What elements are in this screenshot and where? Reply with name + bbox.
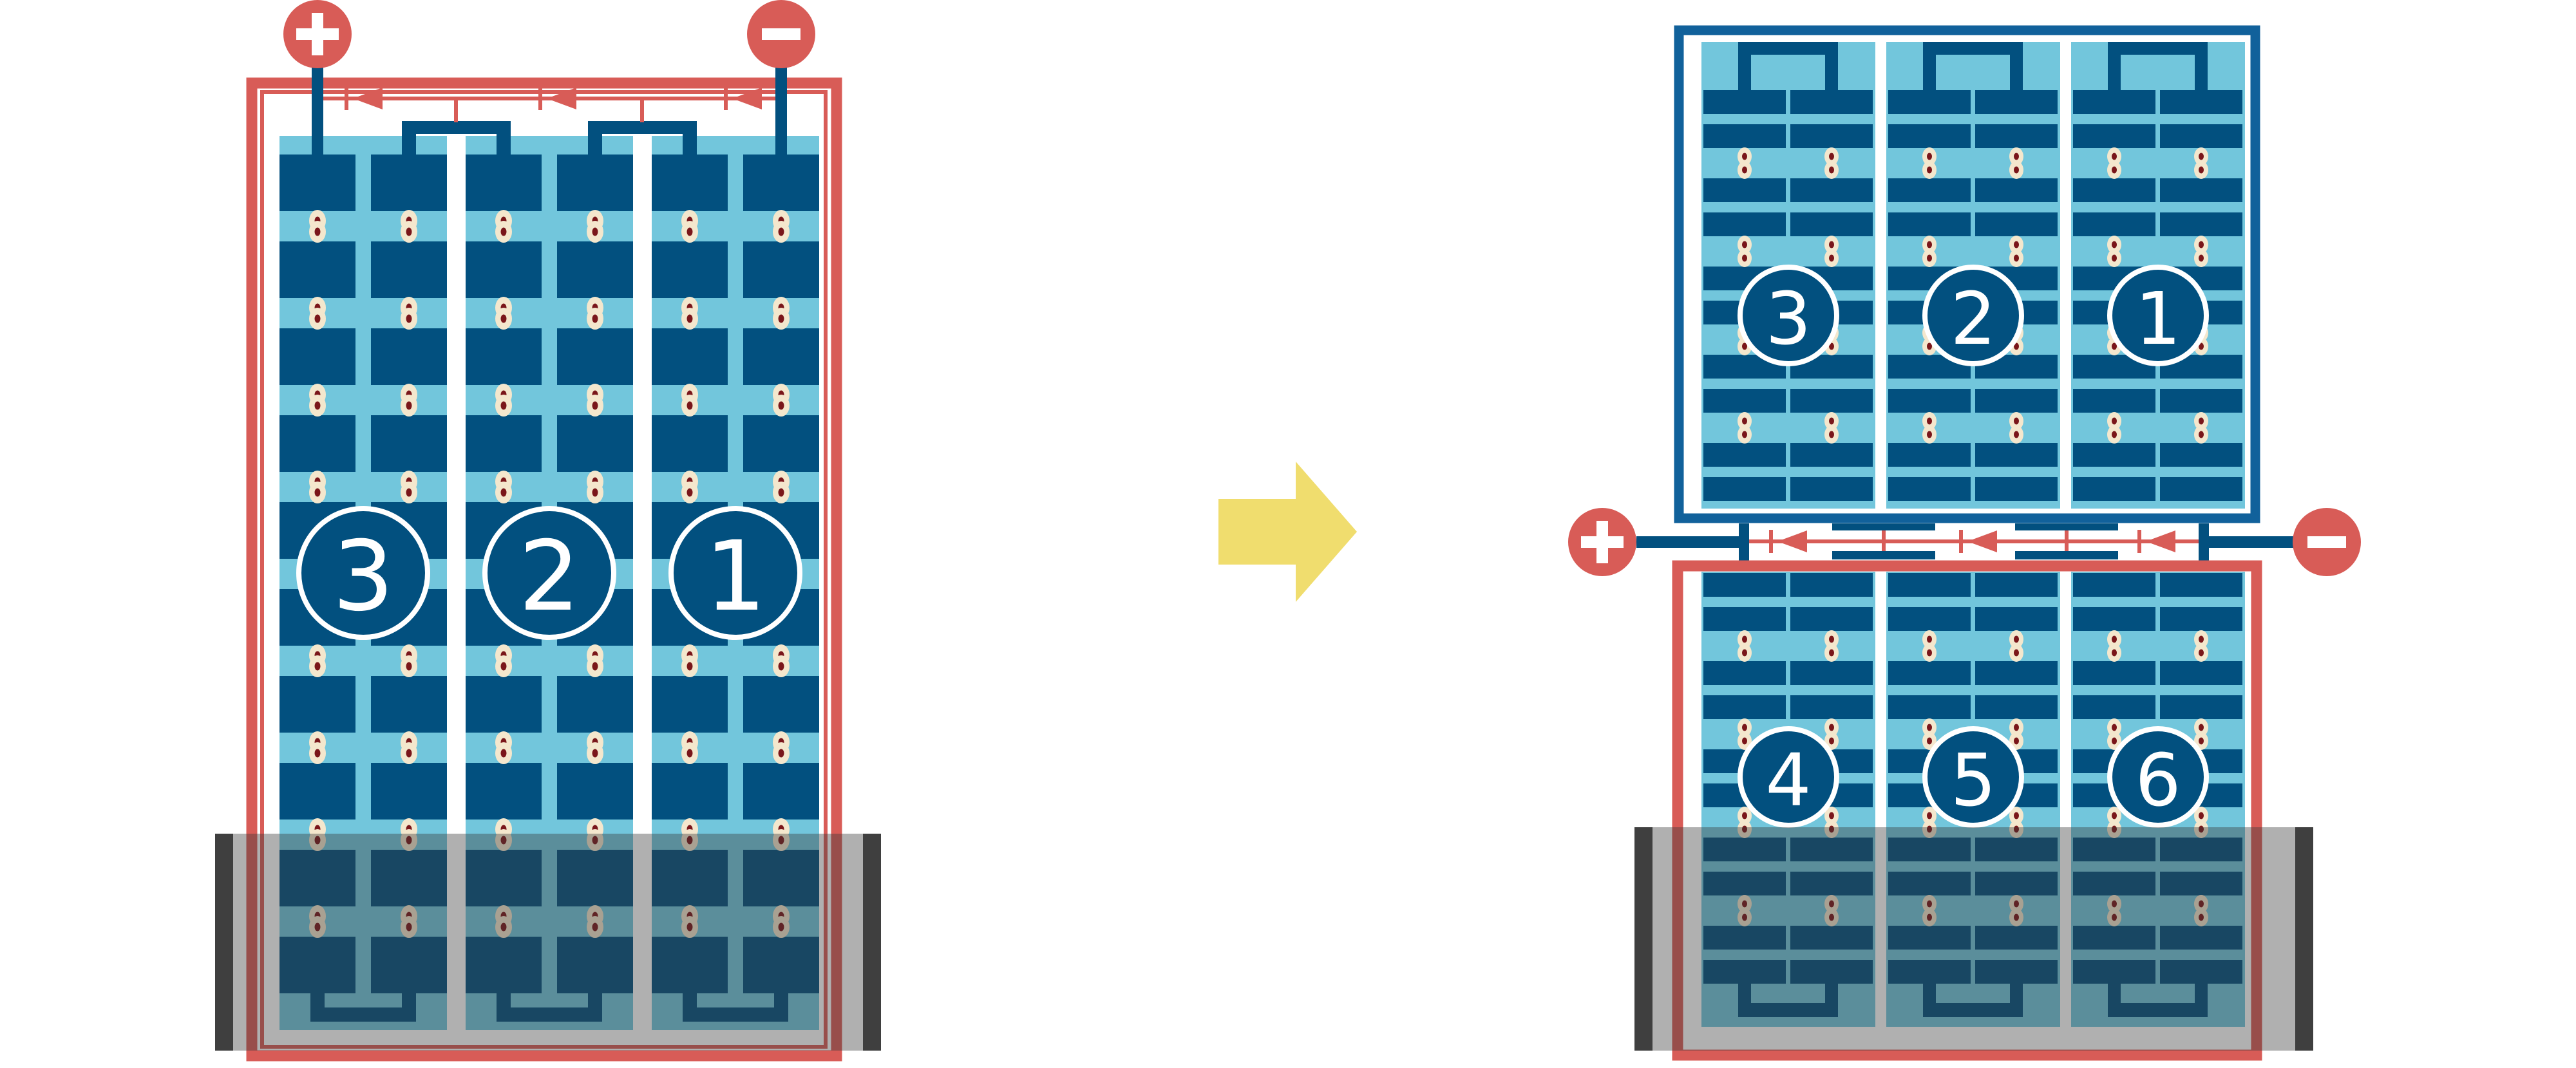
solar-cell — [1790, 695, 1873, 719]
solar-cell — [743, 328, 819, 385]
cell-connector-dot — [773, 644, 790, 677]
solar-cell — [557, 763, 633, 820]
solder-dot-inner — [1742, 812, 1747, 820]
solder-dot-inner — [2199, 812, 2204, 820]
solar-cell — [279, 241, 355, 298]
arrow-right-icon — [1218, 462, 1357, 602]
solder-dot-inner — [2112, 636, 2117, 643]
solar-cell — [2160, 607, 2242, 631]
bridge-bar — [588, 121, 697, 134]
solder-dot-inner — [2112, 153, 2117, 160]
solder-dot-inner — [1742, 241, 1747, 248]
solar-cell — [2073, 212, 2155, 236]
solar-cell — [2073, 178, 2155, 202]
solar-cell — [1790, 124, 1873, 148]
plus-v — [1596, 521, 1608, 563]
shade-band — [1634, 827, 2313, 1051]
solder-dot-inner — [2112, 418, 2117, 425]
string-number: 1 — [2135, 277, 2181, 361]
diode-arrow-left — [1967, 530, 1997, 552]
solar-cell — [2073, 124, 2155, 148]
string-number: 2 — [1950, 277, 1996, 361]
half-cut-module-diagram: 321321456 — [0, 0, 2576, 1068]
solar-cell — [743, 241, 819, 298]
cell-connector-dot — [773, 384, 790, 417]
solar-cell — [1703, 124, 1786, 148]
shade-overlay-right — [1634, 827, 2313, 1051]
negative-terminal — [2293, 508, 2361, 576]
solder-dot-inner — [2199, 418, 2204, 425]
solder-dot-inner — [1829, 255, 1834, 262]
solder-dot-inner — [2112, 241, 2117, 248]
cell-connector-dot — [495, 297, 512, 330]
solder-dot-inner — [2199, 167, 2204, 174]
solder-dot-inner — [779, 489, 784, 497]
solder-dot-inner — [1927, 650, 1932, 657]
diode-cathode-bar — [724, 87, 728, 110]
junction-tick — [1882, 530, 1886, 551]
junction-tab-bottom — [1832, 551, 1935, 559]
solar-cell — [1888, 178, 1971, 202]
string-number-badge: 3 — [299, 509, 428, 637]
junction-tab-bottom — [2015, 551, 2118, 559]
solder-dot-inner — [1927, 418, 1932, 425]
solar-cell — [2160, 389, 2242, 413]
junction-tick — [2065, 530, 2069, 551]
bridge-leg — [402, 134, 416, 157]
solar-cell — [2073, 695, 2155, 719]
solder-dot-inner — [1829, 241, 1834, 248]
string-gap — [1875, 42, 1886, 509]
string-number-badge: 1 — [671, 509, 800, 637]
positive-terminal — [1568, 508, 1636, 576]
solder-dot-inner — [1829, 650, 1834, 657]
cell-connector-dot — [773, 731, 790, 764]
solar-cell — [1888, 389, 1971, 413]
cell-connector-dot — [587, 644, 603, 677]
solar-cell — [466, 155, 542, 211]
solar-cell — [743, 676, 819, 733]
cell-connector-dot — [773, 210, 790, 243]
string-number-badge: 6 — [2110, 729, 2206, 825]
diode-cathode-bar — [1769, 530, 1773, 553]
cell-connector-dot — [401, 297, 417, 330]
cell-connector-dot — [401, 384, 417, 417]
solder-dot-inner — [1742, 724, 1747, 731]
solar-cell — [1703, 212, 1786, 236]
solder-dot-inner — [2014, 255, 2019, 262]
negative-terminal — [747, 0, 815, 68]
solder-dot-inner — [2112, 431, 2117, 438]
solar-cell — [279, 415, 355, 472]
cell-connector-dot — [309, 297, 326, 330]
solar-cell — [2073, 90, 2155, 114]
right-top-module: 321 — [1679, 30, 2255, 518]
solar-cell — [1790, 443, 1873, 467]
cell-connector-dot — [773, 297, 790, 330]
solar-cell — [1790, 178, 1873, 202]
bridge-bar — [2108, 42, 2208, 55]
solar-cell — [743, 155, 819, 211]
solder-dot-inner — [1829, 738, 1834, 745]
shade-overlay-left — [215, 834, 881, 1051]
solder-dot-inner — [315, 489, 321, 497]
solar-cell — [1703, 573, 1786, 597]
diode-arrow-left — [2146, 530, 2175, 552]
solder-dot-inner — [1829, 724, 1834, 731]
solder-dot-inner — [1742, 418, 1747, 425]
cell-connector-dot — [587, 471, 603, 503]
solder-dot-inner — [1742, 738, 1747, 745]
solar-cell — [652, 155, 728, 211]
solar-cell — [1790, 661, 1873, 685]
cell-connector-dot — [495, 210, 512, 243]
bridge-leg — [588, 134, 602, 157]
solar-cell — [2160, 695, 2242, 719]
solar-cell — [1975, 573, 2058, 597]
solder-dot-inner — [2112, 812, 2117, 820]
solar-cell — [2073, 443, 2155, 467]
cell-connector-dot — [681, 384, 698, 417]
solar-cell — [1975, 607, 2058, 631]
solar-cell — [371, 676, 447, 733]
cell-connector-dot — [309, 644, 326, 677]
solar-cell — [1703, 443, 1786, 467]
solder-dot-inner — [2112, 167, 2117, 174]
solar-cell — [2073, 477, 2155, 501]
solder-dot-inner — [315, 315, 321, 323]
solder-dot-inner — [2199, 636, 2204, 643]
solder-dot-inner — [406, 489, 412, 497]
solar-cell — [1888, 661, 1971, 685]
string-number: 2 — [518, 521, 580, 633]
solder-dot-inner — [1927, 153, 1932, 160]
string-number: 1 — [705, 521, 766, 633]
bridge-bar — [402, 121, 511, 134]
solder-dot-inner — [2014, 738, 2019, 745]
solder-dot-inner — [2112, 650, 2117, 657]
solder-dot-inner — [779, 315, 784, 323]
bridge-leg — [2010, 55, 2023, 91]
solder-dot-inner — [2199, 255, 2204, 262]
solder-dot-inner — [2112, 255, 2117, 262]
cell-connector-dot — [495, 731, 512, 764]
solder-dot-inner — [2014, 724, 2019, 731]
solar-cell — [2073, 573, 2155, 597]
solder-dot-inner — [779, 749, 784, 758]
solder-dot-inner — [406, 749, 412, 758]
solder-dot-inner — [315, 749, 321, 758]
solar-cell — [1975, 389, 2058, 413]
solder-dot-inner — [1927, 431, 1932, 438]
solder-dot-inner — [1742, 431, 1747, 438]
cell-connector-dot — [681, 731, 698, 764]
solder-dot-inner — [501, 315, 507, 323]
diode-cathode-bar — [1959, 530, 1963, 553]
cell-connector-dot — [309, 731, 326, 764]
solar-cell — [1975, 443, 2058, 467]
solar-cell — [1790, 90, 1873, 114]
string-number: 3 — [1765, 277, 1811, 361]
shade-post-left — [215, 834, 233, 1051]
solar-cell — [371, 155, 447, 211]
cell-connector-dot — [495, 644, 512, 677]
solder-dot-inner — [1742, 255, 1747, 262]
solar-cell — [1703, 607, 1786, 631]
solder-dot-inner — [501, 402, 507, 410]
solar-cell — [1975, 477, 2058, 501]
solar-cell — [652, 415, 728, 472]
solder-dot-inner — [2014, 650, 2019, 657]
terminal-lead — [2201, 536, 2297, 548]
solar-cell — [466, 241, 542, 298]
bridge-bar — [1738, 42, 1838, 55]
solar-cell — [652, 763, 728, 820]
string-number-badge: 2 — [485, 509, 614, 637]
solar-cell — [371, 763, 447, 820]
solder-dot-inner — [1742, 636, 1747, 643]
cell-connector-dot — [401, 644, 417, 677]
solder-dot-inner — [2199, 431, 2204, 438]
cell-connector-dot — [681, 297, 698, 330]
solder-dot-inner — [406, 662, 412, 671]
solar-cell — [1975, 178, 2058, 202]
solder-dot-inner — [501, 489, 507, 497]
solar-cell — [279, 763, 355, 820]
bridge-leg — [1923, 55, 1936, 91]
solder-dot-inner — [687, 228, 693, 236]
solar-cell — [557, 676, 633, 733]
bridge-leg — [2108, 55, 2121, 91]
solder-dot-inner — [687, 402, 693, 410]
solder-dot-inner — [1829, 431, 1834, 438]
minus-h — [2307, 536, 2346, 548]
solar-cell — [2160, 90, 2242, 114]
solar-cell — [2160, 573, 2242, 597]
cell-connector-dot — [495, 471, 512, 503]
string-number-badge: 4 — [1740, 729, 1837, 825]
solar-cell — [652, 676, 728, 733]
solder-dot-inner — [592, 489, 598, 497]
solder-dot-inner — [687, 489, 693, 497]
shade-post-right — [2295, 827, 2313, 1051]
solar-cell — [2073, 389, 2155, 413]
solder-dot-inner — [1829, 636, 1834, 643]
solar-cell — [1703, 389, 1786, 413]
cell-connector-dot — [587, 731, 603, 764]
solder-dot-inner — [1927, 724, 1932, 731]
bridge-leg — [2195, 55, 2208, 91]
bridge-leg — [1738, 55, 1751, 91]
solder-dot-inner — [501, 662, 507, 671]
cell-connector-dot — [587, 384, 603, 417]
solar-cell — [557, 155, 633, 211]
cell-connector-dot — [495, 384, 512, 417]
solar-cell — [279, 155, 355, 211]
diode-cathode-bar — [345, 87, 348, 110]
solder-dot-inner — [501, 228, 507, 236]
minus-icon — [2307, 536, 2346, 548]
solder-dot-inner — [315, 402, 321, 410]
solar-cell — [371, 328, 447, 385]
bridge-leg — [1825, 55, 1838, 91]
junction-tab-top — [2015, 523, 2118, 530]
solar-cell — [1703, 695, 1786, 719]
solar-cell — [1888, 607, 1971, 631]
solar-cell — [1975, 661, 2058, 685]
solder-dot-inner — [1829, 167, 1834, 174]
terminal-lead — [1636, 536, 1749, 548]
solar-cell — [2160, 124, 2242, 148]
solar-cell — [1790, 477, 1873, 501]
solar-cell — [1888, 443, 1971, 467]
solar-cell — [2073, 607, 2155, 631]
solder-dot-inner — [315, 662, 321, 671]
solder-dot-inner — [779, 402, 784, 410]
solar-cell — [557, 328, 633, 385]
solder-dot-inner — [1742, 650, 1747, 657]
solder-dot-inner — [687, 662, 693, 671]
solder-dot-inner — [2014, 418, 2019, 425]
solar-cell — [1888, 573, 1971, 597]
solder-dot-inner — [779, 228, 784, 236]
solar-cell — [466, 676, 542, 733]
solar-cell — [1975, 695, 2058, 719]
solar-cell — [1790, 389, 1873, 413]
terminal-lead — [312, 63, 323, 156]
positive-terminal — [283, 0, 352, 68]
solder-dot-inner — [406, 228, 412, 236]
solder-dot-inner — [592, 749, 598, 758]
solar-cell — [1703, 661, 1786, 685]
cell-connector-dot — [681, 644, 698, 677]
string-number: 4 — [1765, 739, 1811, 823]
solder-dot-inner — [592, 402, 598, 410]
bridge-bar — [1923, 42, 2023, 55]
bus-stub — [454, 100, 458, 122]
cell-connector-dot — [401, 731, 417, 764]
string-number-badge: 2 — [1925, 267, 2022, 364]
solder-dot-inner — [2199, 738, 2204, 745]
bus-stub — [640, 100, 644, 122]
solder-dot-inner — [406, 315, 412, 323]
solder-dot-inner — [1927, 241, 1932, 248]
solar-cell — [1703, 90, 1786, 114]
solar-cell — [466, 763, 542, 820]
string-number-badge: 3 — [1740, 267, 1837, 364]
terminal-lead — [775, 63, 787, 156]
solar-cell — [371, 415, 447, 472]
solder-dot-inner — [592, 228, 598, 236]
solar-cell — [1790, 573, 1873, 597]
string-number: 6 — [2135, 739, 2181, 823]
solar-cell — [2160, 178, 2242, 202]
solar-cell — [652, 328, 728, 385]
solar-cell — [466, 415, 542, 472]
diagram-canvas: 321321456 — [0, 0, 2576, 1068]
cell-connector-dot — [773, 471, 790, 503]
solder-dot-inner — [592, 662, 598, 671]
solar-cell — [743, 415, 819, 472]
solar-cell — [1790, 212, 1873, 236]
solar-cell — [1975, 90, 2058, 114]
bridge-leg — [497, 134, 511, 157]
solder-dot-inner — [2014, 153, 2019, 160]
solder-dot-inner — [1829, 812, 1834, 820]
minus-h — [762, 28, 800, 40]
solder-dot-inner — [2014, 431, 2019, 438]
solder-dot-inner — [687, 749, 693, 758]
solar-cell — [2160, 443, 2242, 467]
solder-dot-inner — [315, 228, 321, 236]
solder-dot-inner — [2199, 724, 2204, 731]
solar-cell — [279, 676, 355, 733]
solder-dot-inner — [1742, 153, 1747, 160]
solder-dot-inner — [2199, 153, 2204, 160]
cell-connector-dot — [309, 384, 326, 417]
solar-cell — [279, 328, 355, 385]
string-gap — [2060, 42, 2071, 509]
solar-cell — [1703, 178, 1786, 202]
solar-cell — [1888, 212, 1971, 236]
solar-cell — [1888, 695, 1971, 719]
solar-cell — [557, 415, 633, 472]
shade-post-right — [863, 834, 881, 1051]
solder-dot-inner — [2199, 650, 2204, 657]
bridge-leg — [683, 134, 697, 157]
solder-dot-inner — [501, 749, 507, 758]
minus-icon — [762, 28, 800, 40]
diode-bus — [1749, 530, 2199, 553]
string-number-badge: 1 — [2110, 267, 2206, 364]
junction-tab-top — [1832, 523, 1935, 530]
cell-connector-dot — [309, 471, 326, 503]
solder-dot-inner — [2014, 241, 2019, 248]
solar-cell — [371, 241, 447, 298]
diode-cathode-bar — [538, 87, 542, 110]
diode-cathode-bar — [2137, 530, 2141, 553]
solder-dot-inner — [592, 315, 598, 323]
solar-cell — [2160, 212, 2242, 236]
cell-connector-dot — [401, 471, 417, 503]
string-number-badge: 5 — [1925, 729, 2022, 825]
solar-cell — [1790, 607, 1873, 631]
cell-connector-dot — [681, 471, 698, 503]
cell-connector-dot — [681, 210, 698, 243]
solar-cell — [1888, 477, 1971, 501]
cell-connector-dot — [587, 297, 603, 330]
solder-dot-inner — [1927, 255, 1932, 262]
solder-dot-inner — [1927, 738, 1932, 745]
solar-cell — [652, 241, 728, 298]
solar-cell — [1703, 477, 1786, 501]
solder-dot-inner — [1927, 812, 1932, 820]
solder-dot-inner — [1927, 636, 1932, 643]
solar-cell — [557, 241, 633, 298]
solar-cell — [743, 763, 819, 820]
cell-connector-dot — [401, 210, 417, 243]
solder-dot-inner — [1829, 418, 1834, 425]
solar-cell — [466, 328, 542, 385]
cell-connector-dot — [309, 210, 326, 243]
solder-dot-inner — [2014, 812, 2019, 820]
shade-band — [215, 834, 881, 1051]
solder-dot-inner — [687, 315, 693, 323]
plus-v — [312, 13, 323, 55]
cell-connector-dot — [587, 210, 603, 243]
solder-dot-inner — [2112, 738, 2117, 745]
solder-dot-inner — [1829, 153, 1834, 160]
